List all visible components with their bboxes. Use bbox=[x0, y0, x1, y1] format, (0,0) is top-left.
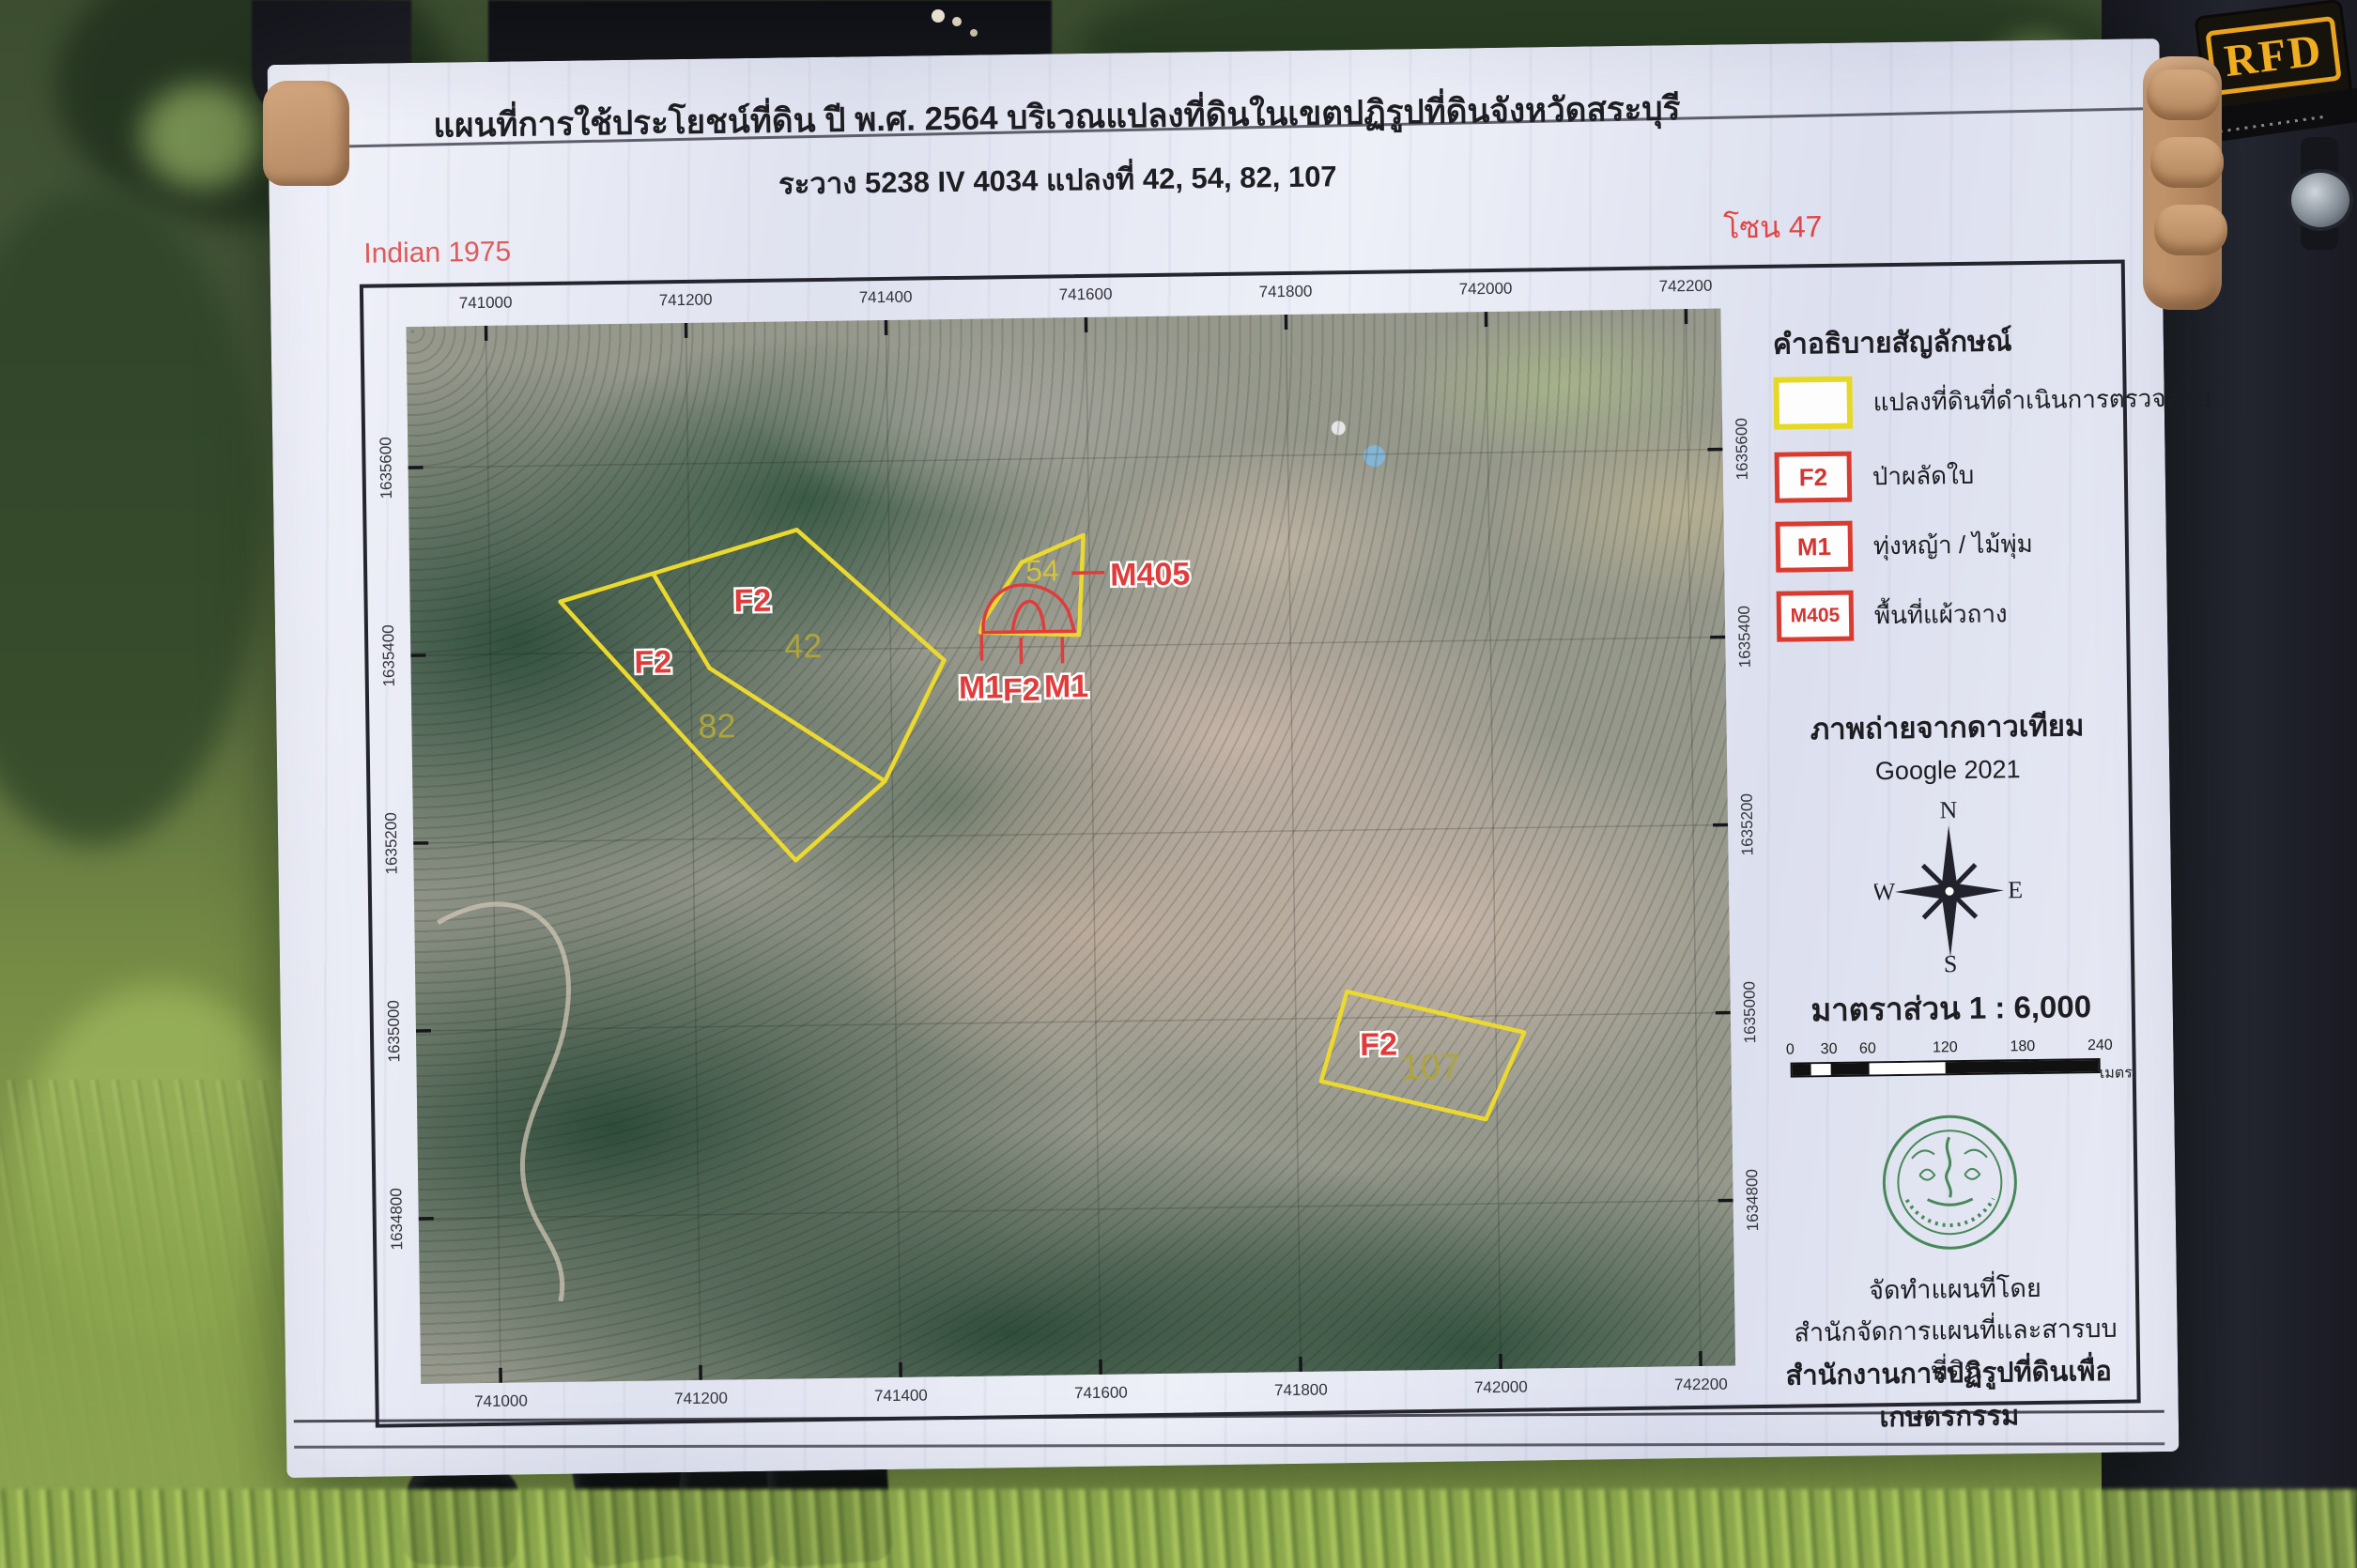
legend-column: คำอธิบายสัญลักษณ์ แปลงที่ดินที่ดำเนินการ… bbox=[1764, 264, 2134, 1405]
left-person-hand bbox=[263, 81, 349, 186]
legend-item-m405: M405 พื้นที่แผ้วถาง bbox=[1777, 588, 2008, 641]
sunlit-leaf-bokeh bbox=[141, 85, 263, 188]
grid-label-top: 742000 bbox=[1459, 280, 1513, 300]
legend-title: คำอธิบายสัญลักษณ์ bbox=[1773, 319, 2012, 367]
landuse-label-f2: F2 bbox=[634, 644, 671, 681]
scale-unit-label: เมตร bbox=[2100, 1062, 2133, 1085]
grid-label-bottom: 742200 bbox=[1674, 1376, 1728, 1395]
grid-label-right: 1635200 bbox=[1738, 793, 1758, 855]
legend-item-label: พื้นที่แผ้วถาง bbox=[1874, 594, 2008, 635]
right-hand-finger bbox=[2154, 205, 2227, 255]
legend-swatch-yellow bbox=[1773, 377, 1853, 430]
landuse-label-m405: M405 bbox=[1110, 556, 1191, 592]
watch-face bbox=[2288, 169, 2353, 231]
grid-label-right: 1635400 bbox=[1735, 606, 1755, 668]
coordinate-grid-lines bbox=[407, 309, 1736, 1384]
map-title-block: แผนที่การใช้ประโยชน์ที่ดิน ปี พ.ศ. 2564 … bbox=[357, 82, 1758, 213]
utm-zone-label: โซน 47 bbox=[1723, 203, 1823, 252]
grid-label-bottom: 741000 bbox=[474, 1391, 528, 1411]
grid-label-top: 741600 bbox=[1059, 285, 1113, 305]
grid-label-bottom: 741400 bbox=[874, 1386, 928, 1406]
grid-label-bottom: 741200 bbox=[674, 1389, 728, 1408]
legend-item-label: ป่าผลัดใบ bbox=[1872, 455, 1975, 496]
dirt-road bbox=[438, 903, 573, 1303]
legend-swatch-f2: F2 bbox=[1775, 452, 1853, 503]
plot-number-42: 42 bbox=[784, 626, 823, 666]
right-hand-finger bbox=[2150, 137, 2224, 188]
satellite-map-image: F2 82 F2 42 54 M405 M1 F2 M1 F2 107 bbox=[407, 309, 1736, 1384]
map-title-line1: แผนที่การใช้ประโยชน์ที่ดิน ปี พ.ศ. 2564 … bbox=[357, 82, 1757, 153]
footer-office: สำนักงานการปฏิรูปที่ดินเพื่อเกษตรกรรม bbox=[1742, 1348, 2156, 1440]
footer-produced-by: จัดทำแผนที่โดย bbox=[1779, 1267, 2133, 1312]
grid-label-left: 1635200 bbox=[382, 812, 402, 874]
legend-item-label: ทุ่งหญ้า / ไม้พุ่ม bbox=[1873, 524, 2033, 564]
grid-label-right: 1635000 bbox=[1740, 981, 1760, 1043]
grid-label-left: 1635400 bbox=[379, 624, 399, 686]
wristwatch bbox=[2272, 137, 2357, 250]
compass-star bbox=[1894, 824, 2005, 958]
scale-tick: 180 bbox=[2010, 1038, 2035, 1055]
grid-label-left: 1635600 bbox=[377, 437, 396, 499]
right-hand-finger bbox=[2147, 69, 2220, 120]
seal-artwork bbox=[1883, 1115, 2016, 1249]
grid-label-top: 741400 bbox=[859, 288, 913, 308]
satellite-source-heading: ภาพถ่ายจากดาวเทียม bbox=[1770, 701, 2124, 753]
scale-bar-labels: 0 30 60 120 180 240 bbox=[1790, 1038, 2100, 1063]
grid-label-top: 741200 bbox=[659, 291, 713, 311]
compass-w: W bbox=[1873, 878, 1896, 905]
foreground-grass bbox=[0, 1489, 2357, 1568]
landuse-label-m1: M1 bbox=[959, 669, 1004, 706]
datum-label: Indian 1975 bbox=[363, 237, 511, 270]
plot-number-107: 107 bbox=[1400, 1048, 1460, 1088]
landuse-label-f2: F2 bbox=[733, 583, 771, 620]
map-annotation-overlay: F2 82 F2 42 54 M405 M1 F2 M1 F2 107 bbox=[407, 309, 1736, 1384]
grid-label-left: 1634800 bbox=[387, 1188, 407, 1250]
landuse-label-f2: F2 bbox=[1003, 672, 1040, 709]
banner-bottom-hem-line bbox=[294, 1442, 2164, 1448]
legend-swatch-m405: M405 bbox=[1777, 591, 1855, 642]
landuse-label-f2: F2 bbox=[1360, 1026, 1397, 1063]
grid-label-bottom: 741600 bbox=[1074, 1383, 1128, 1403]
agency-seal bbox=[1873, 1108, 2026, 1260]
grid-tick-marks bbox=[407, 309, 1736, 1384]
legend-swatch-m1: M1 bbox=[1776, 521, 1854, 573]
satellite-source-credit: Google 2021 bbox=[1771, 754, 2124, 788]
map-scale-text: มาตราส่วน 1 : 6,000 bbox=[1774, 981, 2128, 1036]
landuse-label-m1: M1 bbox=[1044, 669, 1089, 705]
compass-n: N bbox=[1939, 796, 1957, 823]
scale-tick: 120 bbox=[1933, 1039, 1958, 1056]
compass-e: E bbox=[2008, 876, 2023, 903]
grid-label-right: 1634800 bbox=[1743, 1169, 1763, 1231]
plot-number-54: 54 bbox=[1025, 553, 1059, 587]
grid-label-bottom: 742000 bbox=[1474, 1378, 1528, 1398]
legend-item-f2: F2 ป่าผลัดใบ bbox=[1775, 450, 1975, 503]
scale-tick: 60 bbox=[1859, 1040, 1876, 1057]
scale-tick: 30 bbox=[1821, 1041, 1838, 1058]
plot-number-82: 82 bbox=[698, 706, 736, 746]
rfd-patch-text: RFD bbox=[2205, 15, 2342, 95]
legend-item-surveyed-plot: แปลงที่ดินที่ดำเนินการตรวจสอบ bbox=[1773, 371, 2211, 429]
grid-label-top: 741000 bbox=[459, 294, 513, 314]
grid-label-left: 1635000 bbox=[385, 1000, 405, 1062]
scale-bar: 0 30 60 120 180 240 เมตร bbox=[1790, 1038, 2100, 1078]
map-neatline-frame: 741000 741200 741400 741600 741800 74200… bbox=[360, 260, 2141, 1428]
scale-tick: 0 bbox=[1786, 1042, 1795, 1059]
legend-item-label: แปลงที่ดินที่ดำเนินการตรวจสอบ bbox=[1872, 378, 2211, 422]
tree-canopy-blob bbox=[0, 188, 263, 845]
grid-label-top: 741800 bbox=[1259, 283, 1313, 302]
map-title-line2: ระวาง 5238 IV 4034 แปลงที่ 42, 54, 82, 1… bbox=[358, 146, 1758, 213]
grid-label-bottom: 741800 bbox=[1274, 1381, 1328, 1401]
grid-label-top: 742200 bbox=[1659, 277, 1713, 297]
scale-tick: 240 bbox=[2087, 1038, 2113, 1054]
compass-rose: N S W E bbox=[1873, 796, 2026, 976]
map-banner-sheet: แผนที่การใช้ประโยชน์ที่ดิน ปี พ.ศ. 2564 … bbox=[268, 38, 2180, 1478]
grid-label-right: 1635600 bbox=[1733, 418, 1752, 480]
legend-item-m1: M1 ทุ่งหญ้า / ไม้พุ่ม bbox=[1776, 518, 2034, 573]
necklace-beads bbox=[932, 9, 945, 23]
outdoor-photo-scene: RFD แผนที่การใช้ประโยชน์ที่ดิน ปี พ.ศ. 2… bbox=[0, 0, 2357, 1568]
